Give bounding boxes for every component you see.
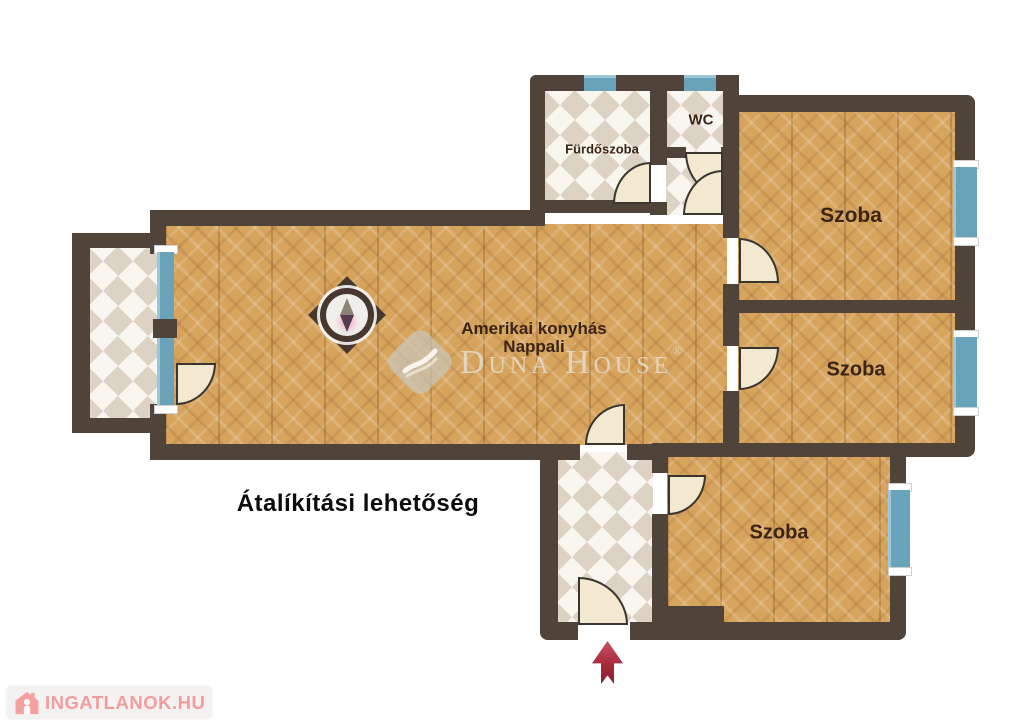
conversion-note: Átalíkítási lehetőség — [237, 490, 480, 518]
entrance-arrow-icon — [592, 641, 623, 684]
wall-segment — [955, 237, 975, 337]
bathroom-window — [584, 75, 616, 91]
compass-needle-north — [340, 298, 354, 315]
wall-segment — [530, 75, 545, 215]
window-sill — [953, 237, 979, 246]
duna-house-watermark: Duna House® — [394, 336, 682, 388]
floor-plan: Fürdőszoba WC Szoba Szoba Szoba Amerikai… — [0, 0, 1024, 727]
wall-segment — [955, 95, 975, 168]
duna-house-logo-icon — [383, 325, 457, 399]
room-middle-window — [953, 337, 977, 407]
duna-house-name: Duna House® — [460, 343, 682, 382]
window-sill — [953, 407, 979, 416]
registered-mark: ® — [672, 343, 682, 358]
wc-window — [684, 75, 716, 91]
compass-needle-south — [340, 315, 354, 332]
room-top-label: Szoba — [820, 204, 882, 228]
wc-label: WC — [689, 112, 714, 129]
wall-segment — [627, 444, 655, 460]
wall-segment — [723, 284, 739, 346]
ingatlanok-watermark: INGATLANOK.HU — [6, 686, 212, 719]
wall-segment — [540, 444, 558, 640]
wall-segment — [737, 95, 975, 112]
house-icon — [13, 689, 41, 717]
wall-segment — [650, 147, 686, 158]
room-top-window — [953, 167, 977, 237]
wall-segment — [630, 622, 906, 640]
wall-segment — [650, 202, 667, 215]
window-sill — [154, 405, 178, 414]
wall-segment — [150, 444, 580, 460]
wall-segment — [652, 443, 668, 473]
wall-segment — [540, 622, 578, 640]
room-middle-label: Szoba — [827, 359, 886, 382]
bathroom-label: Fürdőszoba — [565, 142, 639, 157]
compass-icon — [312, 280, 382, 350]
wall-segment — [723, 391, 739, 444]
wall-segment — [72, 233, 90, 433]
window-sill — [888, 567, 912, 576]
room-bottom-label: Szoba — [750, 522, 809, 545]
ingatlanok-label: INGATLANOK.HU — [45, 692, 205, 714]
room-bottom-window — [888, 490, 910, 567]
balcony-door-post — [153, 319, 177, 338]
balcony-floor — [88, 246, 160, 420]
wall-segment — [150, 210, 545, 226]
wall-segment — [652, 443, 973, 457]
living-room-floor — [165, 224, 727, 445]
wall-segment — [737, 300, 958, 313]
